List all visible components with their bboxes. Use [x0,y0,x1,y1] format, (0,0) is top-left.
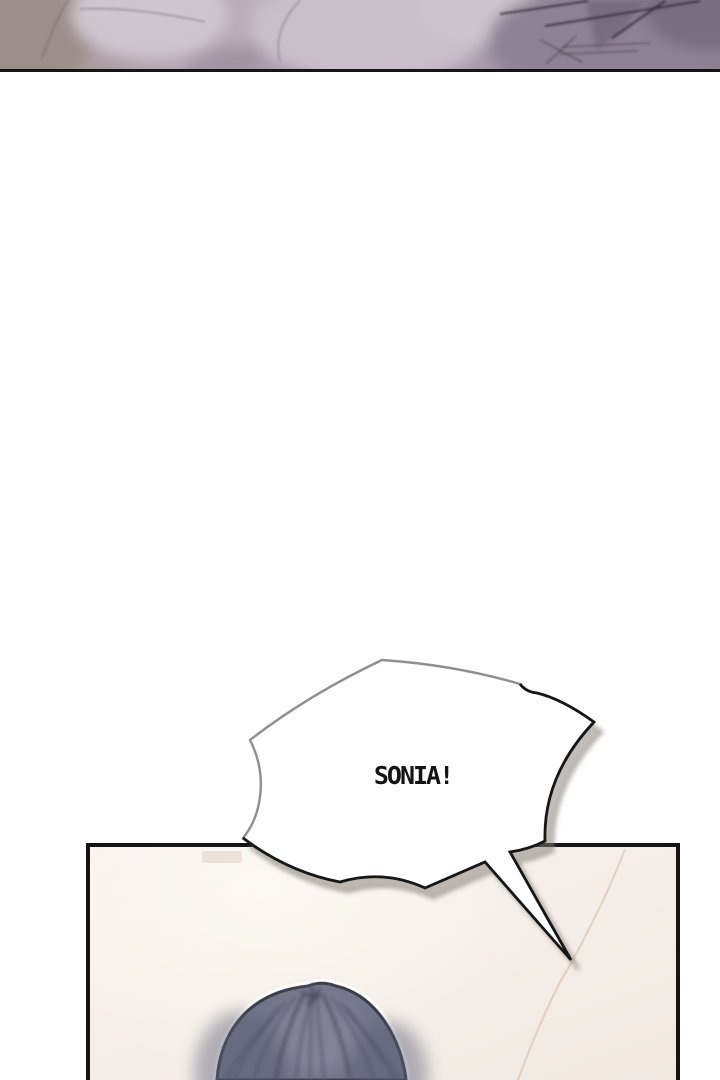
speech-bubble-text: SONIA! [333,762,493,790]
top-art-panel [0,0,720,72]
wall-mark [202,851,242,863]
top-art-illustration [0,0,720,69]
room-panel-art [90,847,676,1080]
character-head-hair [194,983,428,1080]
room-panel [86,843,680,1080]
comic-page: SONIA! [0,0,720,1080]
wall-crease [518,849,625,1080]
